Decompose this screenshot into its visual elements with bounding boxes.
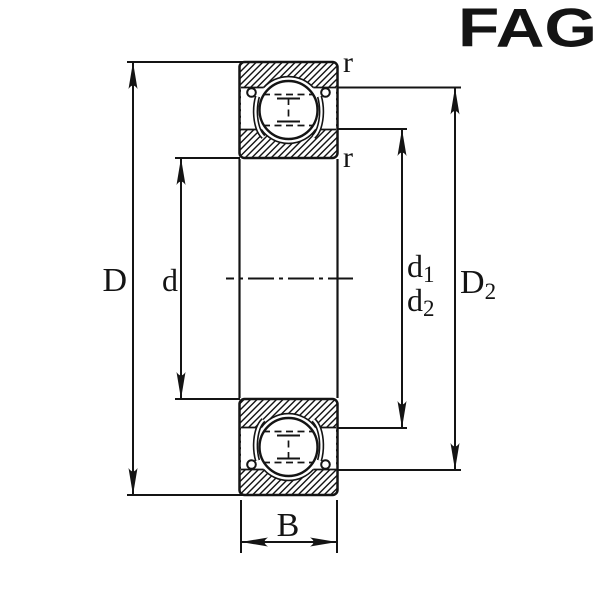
label-d2: d2	[407, 282, 435, 321]
label-D: D	[102, 262, 127, 299]
label-d: d	[162, 262, 178, 298]
label-B: B	[277, 507, 300, 544]
bearing-dimension-drawing: D d d1 d2 D2 B r r FAG	[0, 0, 600, 600]
fag-logo: FAG	[458, 0, 597, 59]
bearing-bottom-section	[240, 399, 338, 495]
bearing-top-section	[240, 62, 338, 158]
label-D2: D2	[460, 264, 496, 304]
label-r-bottom: r	[343, 141, 353, 174]
dimension-D2	[337, 88, 461, 471]
label-r-top: r	[343, 46, 353, 79]
